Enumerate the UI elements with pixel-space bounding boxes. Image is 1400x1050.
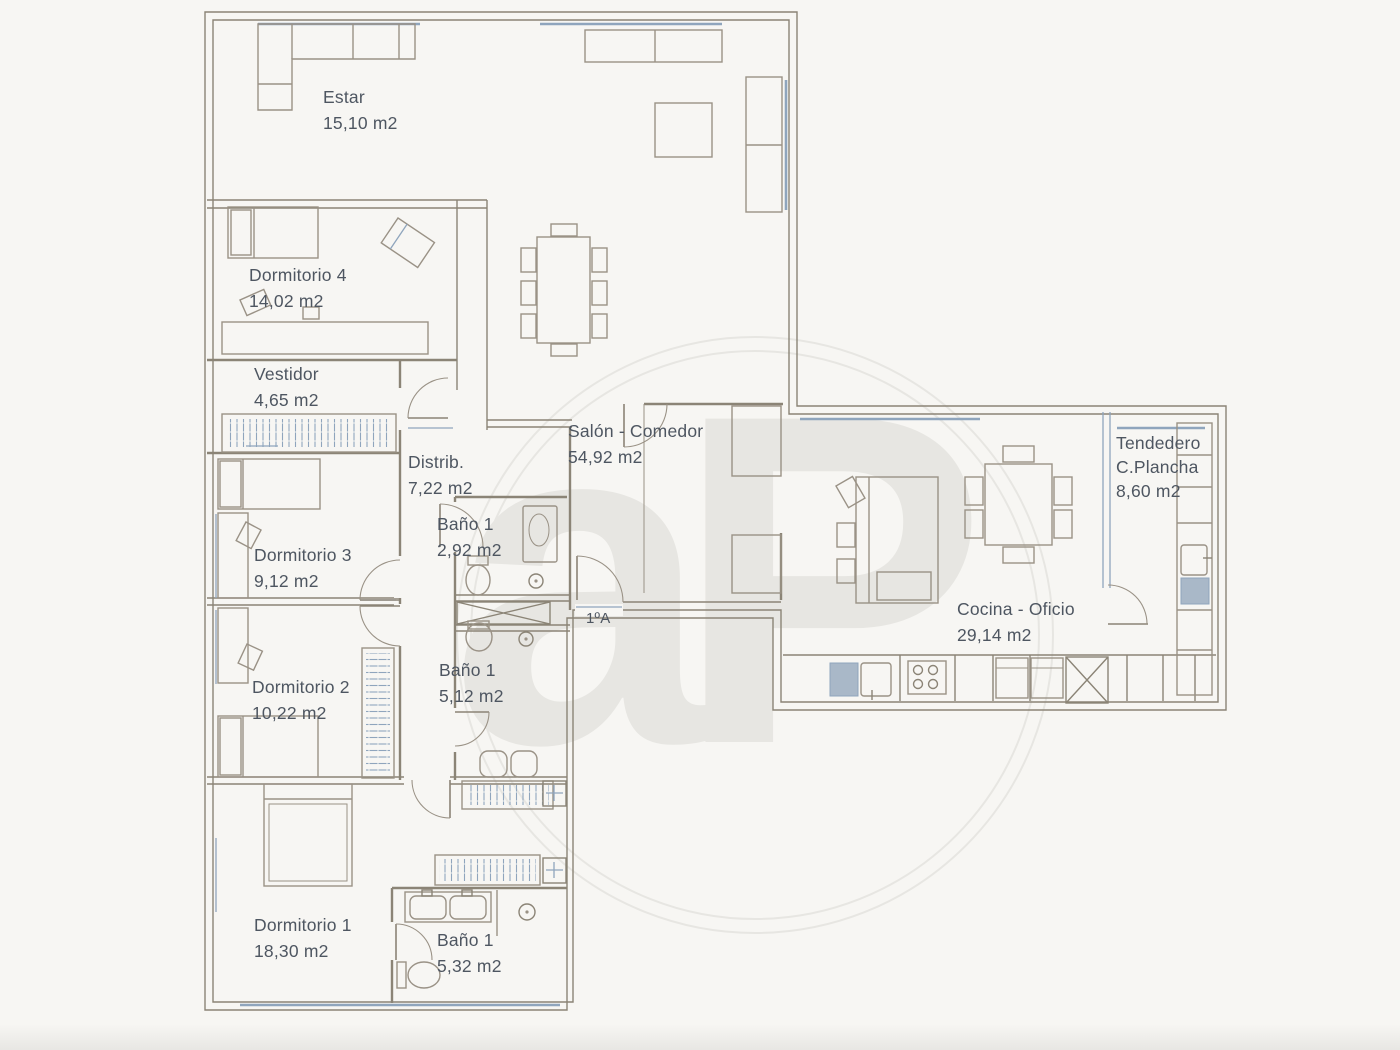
chair xyxy=(238,644,262,670)
sink xyxy=(410,896,446,919)
room-label-estar: Estar 15,10 m2 xyxy=(323,84,398,136)
room-name: Estar xyxy=(323,84,398,110)
room-name: Dormitorio 3 xyxy=(254,542,352,568)
room-area: 7,22 m2 xyxy=(408,475,473,501)
room-name: Distrib. xyxy=(408,449,473,475)
room-area: 5,12 m2 xyxy=(439,683,504,709)
room-label-distribuidor: Distrib. 7,22 m2 xyxy=(408,449,473,501)
pillow xyxy=(220,461,241,507)
room-area: 9,12 m2 xyxy=(254,568,352,594)
room-area: 54,92 m2 xyxy=(568,444,703,470)
sink xyxy=(450,896,486,919)
room-label-dormitorio4: Dormitorio 4 14,02 m2 xyxy=(249,262,347,314)
room-name: Baño 1 xyxy=(437,927,502,953)
room-area: 15,10 m2 xyxy=(323,110,398,136)
room-area: 8,60 m2 xyxy=(1116,479,1201,503)
room-label-bano-superior: Baño 1 2,92 m2 xyxy=(437,511,502,563)
room-area: 2,92 m2 xyxy=(437,537,502,563)
room-area: 18,30 m2 xyxy=(254,938,352,964)
utility-sink xyxy=(1181,545,1207,575)
room-area: 5,32 m2 xyxy=(437,953,502,979)
room-name: Dormitorio 2 xyxy=(252,674,350,700)
room-area: 10,22 m2 xyxy=(252,700,350,726)
bed xyxy=(218,459,320,509)
room-label-dormitorio2: Dormitorio 2 10,22 m2 xyxy=(252,674,350,726)
unit-number: 1ºA xyxy=(586,611,610,627)
room-label-tendedero: Tendedero C.Plancha 8,60 m2 xyxy=(1116,431,1201,503)
sideboard xyxy=(585,30,722,62)
washing-machine xyxy=(1181,578,1209,604)
pillow xyxy=(220,718,241,775)
room-label-salon-comedor: Salón - Comedor 54,92 m2 xyxy=(568,418,703,470)
armchair xyxy=(381,218,434,267)
counter-sink-block xyxy=(830,663,858,696)
room-subname: C.Plancha xyxy=(1116,455,1201,479)
room-name: Tendedero xyxy=(1116,431,1201,455)
room-name: Baño 1 xyxy=(437,511,502,537)
room-area: 4,65 m2 xyxy=(254,387,319,413)
room-name: Cocina - Oficio xyxy=(957,596,1075,622)
side-table xyxy=(655,103,712,157)
pillow xyxy=(231,210,251,255)
room-label-cocina-oficio: Cocina - Oficio 29,14 m2 xyxy=(957,596,1075,648)
desk xyxy=(218,608,248,683)
room-label-bano-medio: Baño 1 5,12 m2 xyxy=(439,657,504,709)
room-name: Dormitorio 4 xyxy=(249,262,347,288)
room-label-bano-inferior: Baño 1 5,32 m2 xyxy=(437,927,502,979)
room-area: 29,14 m2 xyxy=(957,622,1075,648)
room-name: Baño 1 xyxy=(439,657,504,683)
bed xyxy=(228,207,318,258)
kitchen-table xyxy=(985,464,1052,545)
room-label-dormitorio1: Dormitorio 1 18,30 m2 xyxy=(254,912,352,964)
floor-plan: aP xyxy=(0,0,1400,1050)
furniture-vestidor xyxy=(222,414,396,452)
room-name: Dormitorio 1 xyxy=(254,912,352,938)
room-label-dormitorio3: Dormitorio 3 9,12 m2 xyxy=(254,542,352,594)
appliance xyxy=(996,658,1028,698)
floorplan-scan: aP xyxy=(0,0,1400,1050)
room-name: Salón - Comedor xyxy=(568,418,703,444)
toilet xyxy=(408,962,440,988)
desk xyxy=(222,322,428,354)
room-area: 14,02 m2 xyxy=(249,288,347,314)
entrance-unit-label: 1ºA xyxy=(586,611,610,627)
room-name: Vestidor xyxy=(254,361,319,387)
scan-edge-shadow xyxy=(0,1024,1400,1050)
room-label-vestidor: Vestidor 4,65 m2 xyxy=(254,361,319,413)
